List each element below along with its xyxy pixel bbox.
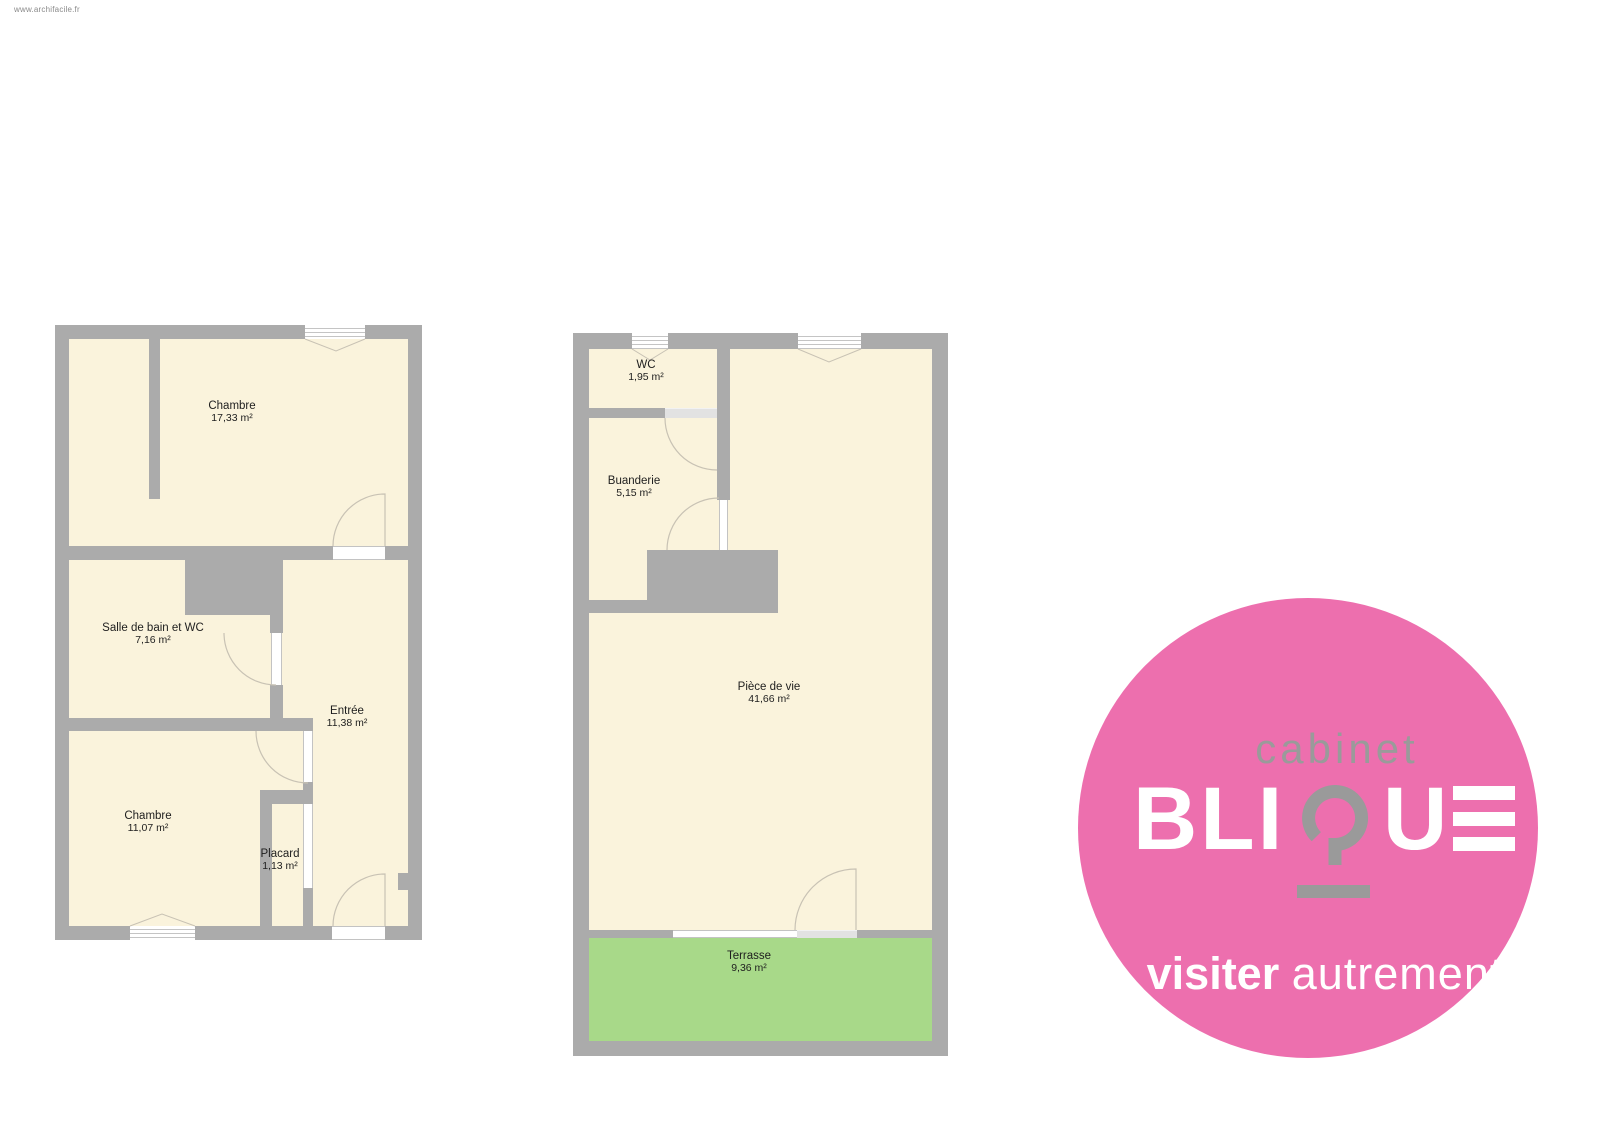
wall-bathroom-south bbox=[69, 718, 313, 731]
room-name: Entrée bbox=[327, 705, 368, 717]
door-threshold-chambre1 bbox=[333, 546, 385, 560]
door-threshold-wc bbox=[665, 408, 717, 418]
floorplan-right: WC 1,95 m² Buanderie 5,15 m² Pièce de vi… bbox=[573, 333, 948, 1056]
tagline-autrement: autrement bbox=[1292, 948, 1504, 999]
room-label-chambre2: Chambre 11,07 m² bbox=[124, 810, 171, 834]
room-area: 1,95 m² bbox=[628, 371, 664, 383]
room-label-terrasse: Terrasse 9,36 m² bbox=[727, 950, 771, 974]
watermark-url: www.archifacile.fr bbox=[14, 5, 80, 14]
room-area: 7,16 m² bbox=[102, 634, 204, 646]
e-bar bbox=[1453, 837, 1515, 851]
wordmark-letter-e-stylized bbox=[1453, 786, 1515, 851]
room-label-entree: Entrée 11,38 m² bbox=[327, 705, 368, 729]
agency-logo: cabinet BLI U visiter autrement bbox=[1078, 598, 1538, 1058]
room-name: Terrasse bbox=[727, 950, 771, 962]
door-threshold-chambre2 bbox=[303, 731, 313, 782]
wall-bathroom-east-lower bbox=[270, 685, 283, 718]
duct-block bbox=[185, 560, 273, 615]
floorplan-left: Chambre 17,33 m² Salle de bain et WC 7,1… bbox=[55, 325, 422, 940]
wall-stub-chambre1 bbox=[149, 339, 160, 499]
room-name: Buanderie bbox=[608, 475, 660, 487]
window-chambre2-icon bbox=[130, 926, 195, 940]
room-label-chambre1: Chambre 17,33 m² bbox=[208, 400, 255, 424]
room-area: 11,38 m² bbox=[327, 717, 368, 729]
room-name: Salle de bain et WC bbox=[102, 622, 204, 634]
room-area: 9,36 m² bbox=[727, 962, 771, 974]
window-chambre1-icon bbox=[305, 325, 365, 339]
room-area: 11,07 m² bbox=[124, 822, 171, 834]
room-label-buanderie: Buanderie 5,15 m² bbox=[608, 475, 660, 499]
room-area: 5,15 m² bbox=[608, 487, 660, 499]
room-label-placard: Placard 1,13 m² bbox=[261, 848, 300, 872]
room-label-wc: WC 1,95 m² bbox=[628, 359, 664, 383]
window-wc-icon bbox=[632, 333, 668, 349]
room-name: Chambre bbox=[124, 810, 171, 822]
door-threshold-entrance bbox=[332, 926, 385, 940]
room-name: Placard bbox=[261, 848, 300, 860]
e-bar bbox=[1453, 812, 1515, 826]
room-label-salle-de-bain: Salle de bain et WC 7,16 m² bbox=[102, 622, 204, 646]
door-threshold-placard bbox=[303, 804, 313, 888]
terrace-door-threshold bbox=[797, 930, 857, 938]
room-area: 17,33 m² bbox=[208, 412, 255, 424]
wordmark-letter-u: U bbox=[1383, 774, 1450, 863]
room-area: 1,13 m² bbox=[261, 860, 300, 872]
floor-area bbox=[589, 349, 932, 930]
tagline-visiter: visiter bbox=[1147, 948, 1280, 999]
wall-joint bbox=[303, 782, 313, 790]
logo-wordmark-blique: BLI U bbox=[1133, 785, 1517, 900]
window-piece-de-vie-icon bbox=[798, 333, 861, 349]
logo-cabinet-text: cabinet bbox=[1255, 728, 1418, 770]
wall-wc-buanderie-east bbox=[717, 349, 730, 500]
bay-window-threshold bbox=[673, 930, 797, 938]
stair-block bbox=[647, 550, 778, 613]
wall-wc-south bbox=[589, 408, 665, 418]
room-name: WC bbox=[628, 359, 664, 371]
room-name: Chambre bbox=[208, 400, 255, 412]
e-bar bbox=[1453, 786, 1515, 800]
room-label-piece-de-vie: Pièce de vie 41,66 m² bbox=[738, 681, 801, 705]
wall-buanderie-south bbox=[589, 600, 647, 613]
door-threshold-bathroom bbox=[271, 633, 282, 685]
room-name: Pièce de vie bbox=[738, 681, 801, 693]
wall-bathroom-east-upper bbox=[270, 560, 283, 633]
wall-notch-east bbox=[398, 873, 422, 890]
wordmark-letters-bli: BLI bbox=[1133, 774, 1285, 863]
room-area: 41,66 m² bbox=[738, 693, 801, 705]
logo-tagline: visiter autrement bbox=[1147, 950, 1504, 998]
door-threshold-buanderie bbox=[719, 500, 728, 550]
q-glyph-icon bbox=[1295, 785, 1375, 898]
wall-placard-south-jamb bbox=[303, 888, 313, 926]
